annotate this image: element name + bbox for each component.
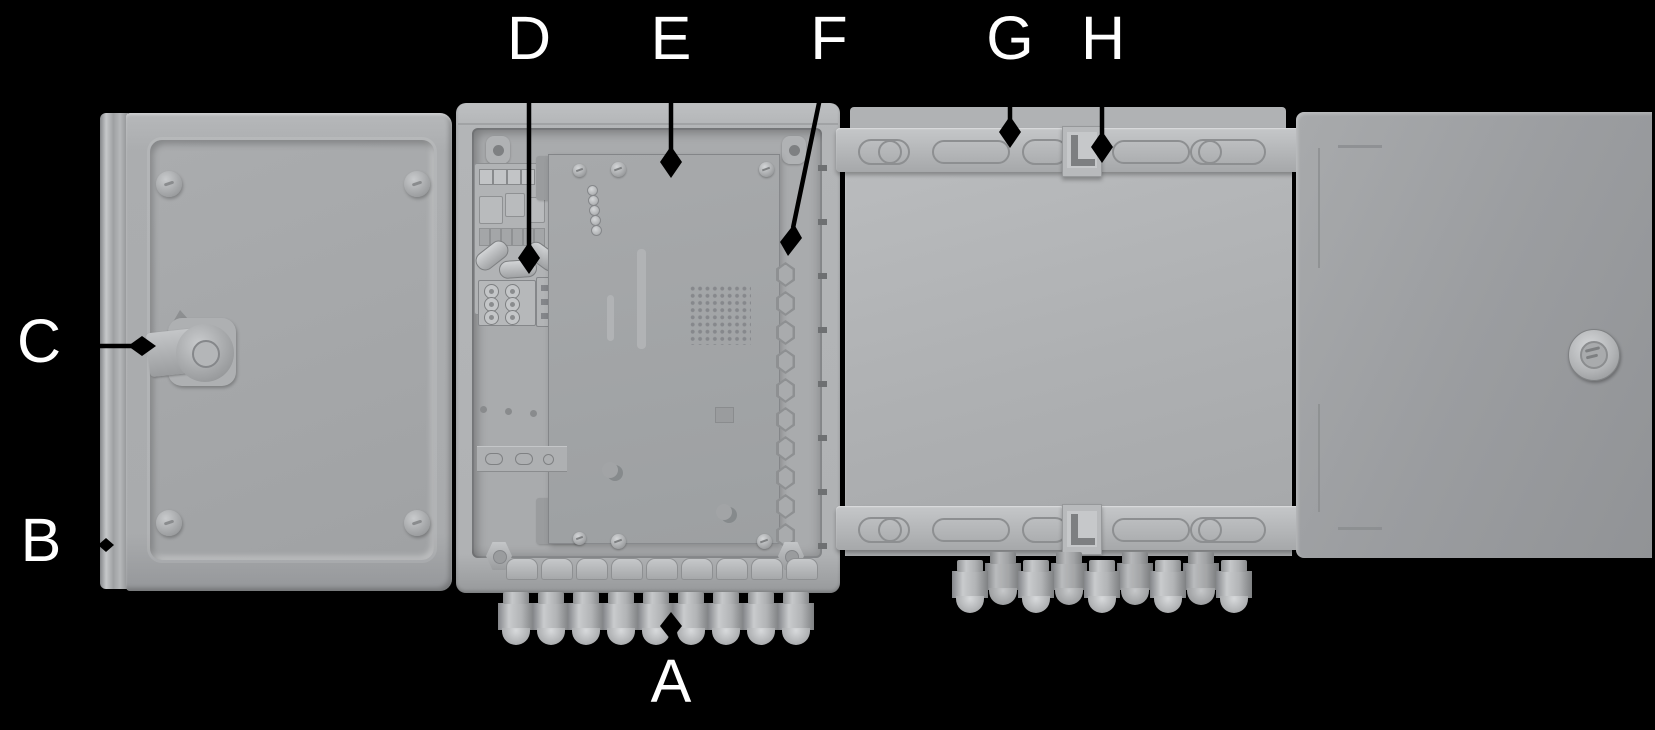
cable-gland xyxy=(1084,560,1120,614)
cable-gland xyxy=(1117,552,1153,606)
rear-body xyxy=(845,128,1292,556)
bracket-slot xyxy=(1112,140,1190,164)
callout-label-e: E xyxy=(651,8,692,69)
enclosure-rear-view xyxy=(0,0,1655,730)
bracket-keyhole-block xyxy=(1062,126,1102,177)
callout-label-h: H xyxy=(1081,8,1125,69)
cable-gland xyxy=(1150,560,1186,614)
cable-gland xyxy=(985,552,1021,606)
callout-label-d: D xyxy=(507,8,551,69)
bracket-keyhole-block xyxy=(1062,504,1102,555)
callout-label-a: A xyxy=(651,651,692,712)
bracket-slot xyxy=(932,518,1010,542)
door-dash xyxy=(1338,145,1382,148)
callout-label-g: G xyxy=(986,8,1033,69)
cable-gland xyxy=(1018,560,1054,614)
bracket-slot xyxy=(858,139,910,165)
keyhole-mark xyxy=(1071,159,1095,166)
diagram-stage: D E F G H C B A xyxy=(0,0,1655,730)
door-seam xyxy=(1318,148,1320,268)
callout-label-f: F xyxy=(810,8,847,69)
cable-gland xyxy=(952,560,988,614)
door-dash xyxy=(1338,527,1382,530)
cable-gland xyxy=(1051,552,1087,606)
keyhole-mark xyxy=(1071,538,1095,545)
bracket-slot xyxy=(1112,518,1190,542)
bracket-slot xyxy=(1190,139,1266,165)
door-seam xyxy=(1318,404,1320,512)
bracket-slot xyxy=(932,140,1010,164)
bracket-slot xyxy=(1190,517,1266,543)
closed-door xyxy=(1296,112,1652,558)
cable-gland xyxy=(1216,560,1252,614)
cable-gland xyxy=(1183,552,1219,606)
callout-label-c: C xyxy=(17,311,61,372)
callout-label-b: B xyxy=(21,510,62,571)
bracket-slot xyxy=(858,517,910,543)
